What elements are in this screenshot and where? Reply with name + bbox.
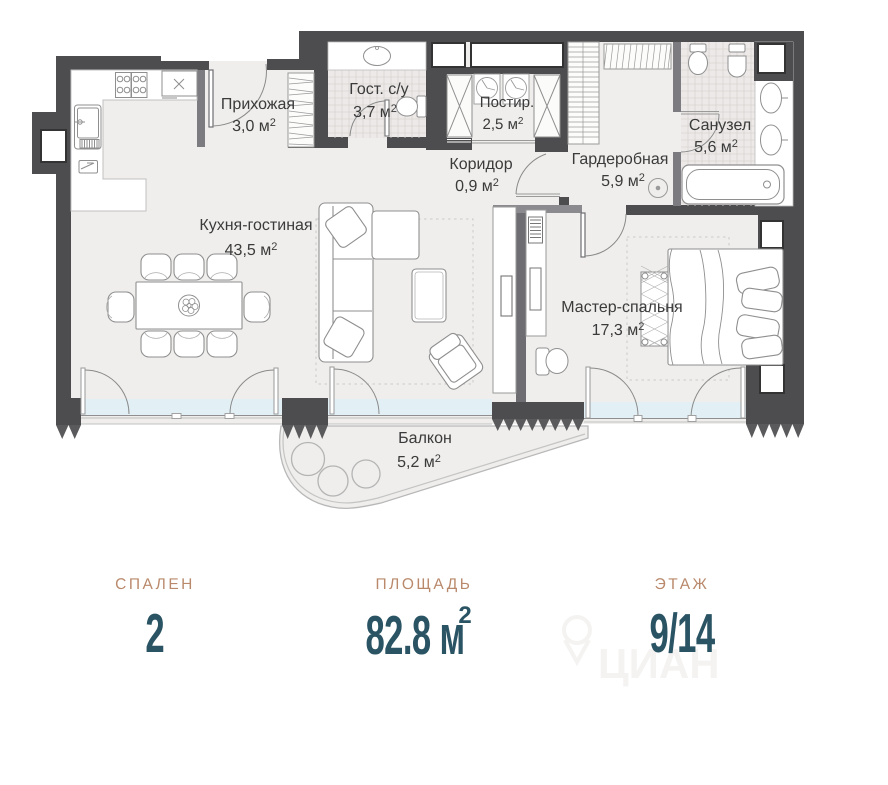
svg-text:5,6 м2: 5,6 м2 — [694, 138, 738, 156]
svg-text:ЭТАЖ: ЭТАЖ — [655, 576, 710, 593]
svg-text:2,5 м2: 2,5 м2 — [483, 116, 524, 133]
svg-text:2: 2 — [145, 602, 164, 664]
svg-text:ПЛОЩАДЬ: ПЛОЩАДЬ — [376, 576, 473, 593]
svg-text:43,5 м2: 43,5 м2 — [225, 241, 278, 259]
svg-text:СПАЛЕН: СПАЛЕН — [115, 576, 195, 593]
svg-text:Прихожая: Прихожая — [221, 96, 295, 113]
svg-text:Санузел: Санузел — [689, 117, 751, 134]
svg-text:82.8 м: 82.8 м — [366, 604, 465, 666]
svg-text:0,9 м2: 0,9 м2 — [455, 177, 499, 195]
svg-text:3,7 м2: 3,7 м2 — [353, 103, 397, 121]
svg-text:Гост. с/у: Гост. с/у — [349, 81, 408, 98]
svg-text:3,0 м2: 3,0 м2 — [232, 117, 276, 135]
svg-text:Кухня-гостиная: Кухня-гостиная — [199, 217, 312, 234]
svg-text:Мастер-спальня: Мастер-спальня — [561, 299, 682, 316]
svg-text:2: 2 — [458, 602, 471, 629]
svg-text:5,9 м2: 5,9 м2 — [601, 172, 645, 190]
svg-text:Постир.: Постир. — [480, 94, 534, 111]
svg-text:Гардеробная: Гардеробная — [572, 151, 669, 168]
svg-text:9/14: 9/14 — [650, 602, 716, 664]
svg-text:Коридор: Коридор — [449, 156, 512, 173]
svg-text:5,2 м2: 5,2 м2 — [397, 453, 441, 471]
svg-text:Балкон: Балкон — [398, 430, 452, 447]
svg-text:17,3 м2: 17,3 м2 — [592, 321, 645, 339]
